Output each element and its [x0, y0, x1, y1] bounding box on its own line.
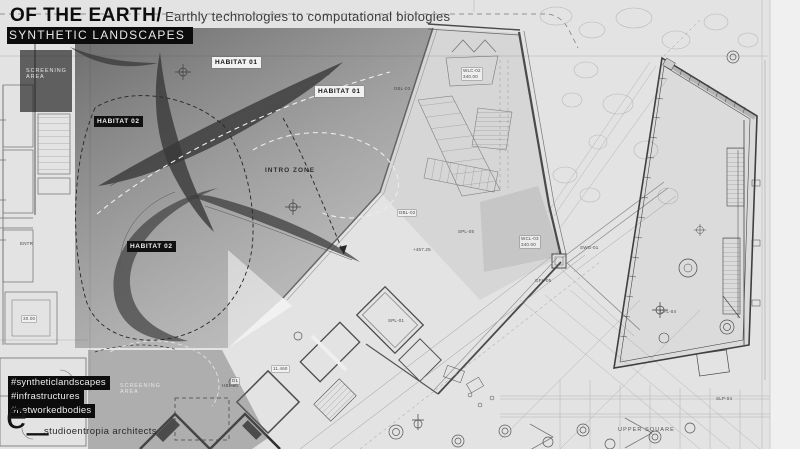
plan-annotation-slp-04: SLP-04: [716, 396, 732, 402]
plan-annotation-457-25: +457.25: [413, 247, 431, 253]
plan-annotation-hbl-01: HBL-01: [222, 383, 238, 389]
zone-label-intro-zone: INTRO ZONE: [262, 165, 318, 176]
page-subtitle: Earthly technologies to computational bi…: [165, 9, 450, 24]
plan-annotation-spl-05: SPL-05: [458, 229, 474, 235]
plan-annotation-30-00: 30.00: [22, 316, 36, 322]
right-margin-strip: [770, 0, 800, 449]
plan-annotation-spl-01: SPL-01: [388, 318, 404, 324]
zone-label-habitat-01: HABITAT 01: [315, 86, 364, 97]
zone-label-habitat-02: HABITAT 02: [127, 241, 176, 252]
zone-label-screening-area: SCREENING AREA: [117, 381, 164, 397]
zone-label-habitat-01: HABITAT 01: [212, 57, 261, 68]
zone-label-habitat-02: HABITAT 02: [94, 116, 143, 127]
plan-annotation-entr: ENTR: [20, 241, 33, 247]
studio-name: studioentropia architects: [44, 426, 157, 437]
plan-annotation-11-460: 11.460: [272, 366, 289, 372]
plan-annotation-dbl-03: DBL-03: [394, 86, 410, 92]
plan-annotation-upper-square: UPPER SQUARE: [618, 427, 675, 434]
plan-annotation-wcl-03-340-00: WCL-03 340.00: [520, 236, 540, 248]
plan-annotation-dbl-02: DBL-02: [398, 210, 416, 216]
slide-canvas: OF THE EARTH/ Earthly technologies to co…: [0, 0, 800, 449]
banner-synthetic-landscapes: SYNTHETIC LANDSCAPES: [7, 27, 193, 44]
header: OF THE EARTH/ Earthly technologies to co…: [10, 5, 450, 27]
plan-annotation-gfl-05: GFL-05: [535, 278, 551, 284]
plan-annotation-cfl-04: CFL-04: [660, 309, 676, 315]
plan-annotation-swg-01: SWG-01: [580, 245, 598, 251]
hashtag-syntheticlandscapes: #syntheticlandscapes: [8, 376, 110, 390]
plan-annotation-d1: D1: [231, 378, 239, 384]
page-title: OF THE EARTH/: [10, 5, 162, 27]
studio-logo: e_: [6, 397, 48, 435]
plan-annotation-wlc-02-340-00: WLC-02 340.00: [462, 68, 482, 80]
zone-label-screening-area: SCREENING AREA: [23, 66, 70, 82]
